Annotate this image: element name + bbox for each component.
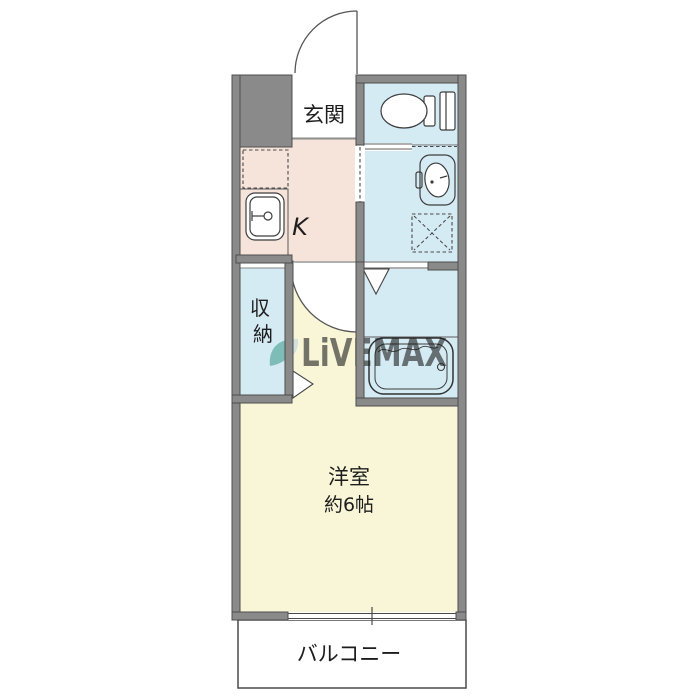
wall-kitchen-washroom-upper [356,83,364,145]
washroom-floor [364,145,458,262]
toilet-tank [440,92,455,130]
wall-washroom-bath-right [428,262,458,270]
wall-left [232,75,240,620]
main-room-label: 洋室 [328,465,370,489]
wall-closet-bottom [232,395,292,403]
floor-plan: LiVEMAX 玄関 K 収 納 洋室 約6帖 バルコニー [0,0,700,700]
watermark-text: LiVEMAX [301,331,447,375]
kitchen-label: K [292,213,310,241]
toilet-bowl [381,94,427,128]
wall-closet-right [285,261,293,398]
washbasin-drain [430,180,433,183]
wall-bottom-left-stub [232,612,288,620]
wall-right [458,75,466,620]
wall-top-right [356,75,466,83]
wall-bath-bottom [356,398,458,406]
wall-kitchen-closet [236,255,292,263]
genkan-label: 玄関 [303,103,345,127]
wall-hall-bath [356,262,364,405]
wall-block-top-left [232,75,292,147]
wall-bottom-right-stub [456,612,466,620]
main-room-size-label: 約6帖 [324,494,374,516]
closet-label-char-1: 収 [250,296,270,320]
closet-label-char-2: 納 [253,322,273,346]
wall-kitchen-washroom-lower [356,202,364,262]
entrance-door-swept-area [295,11,357,73]
floor-plan-canvas: LiVEMAX 玄関 K 収 納 洋室 約6帖 バルコニー [0,0,700,700]
toilet-icon [381,92,455,130]
balcony-label: バルコニー [297,642,402,666]
